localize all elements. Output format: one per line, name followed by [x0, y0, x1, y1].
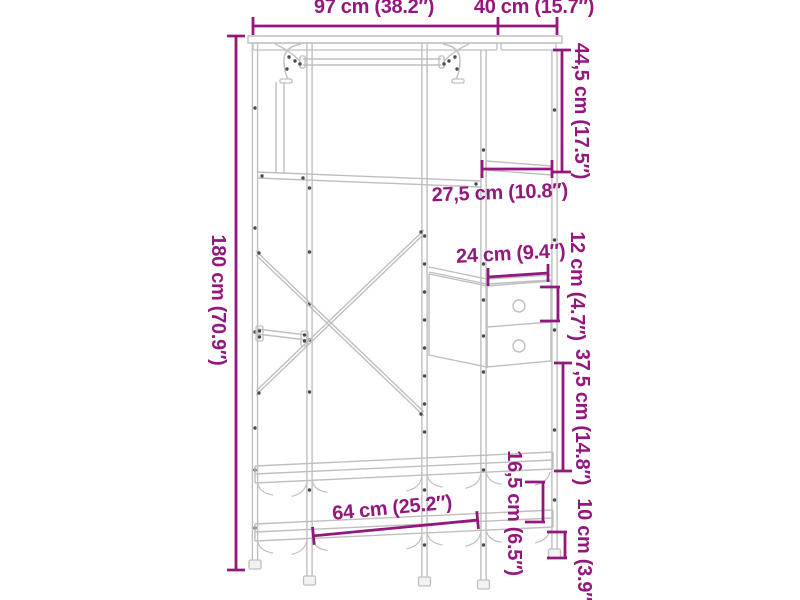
dim-top-section-height: 44,5 cm (17.5″): [553, 43, 592, 179]
diagram-canvas: 97 cm (38.2″) 40 cm (15.7″) 180 cm (70.9…: [0, 0, 800, 600]
x-brace: [256, 230, 424, 416]
total-depth-label: 40 cm (15.7″): [474, 0, 594, 18]
mid-section-height-label: 37,5 cm (14.8″): [571, 349, 593, 485]
dim-total-depth: 40 cm (15.7″): [474, 0, 594, 18]
top-board: [248, 36, 562, 50]
left-support: [276, 82, 284, 173]
side-shelf-depth-label: 27,5 cm (10.8″): [431, 180, 568, 207]
dim-shelf-length: 64 cm (25.2″): [310, 489, 478, 545]
total-width-label: 97 cm (38.2″): [314, 0, 434, 18]
total-height-label: 180 cm (70.9″): [207, 234, 229, 365]
shelf-length-label: 64 cm (25.2″): [331, 491, 453, 524]
top-section-height-label: 44,5 cm (17.5″): [570, 43, 592, 179]
shelf-gap-height-label: 16,5 cm (6.5″): [503, 450, 525, 575]
ground-clearance-label: 10 cm (3.9″): [573, 498, 595, 600]
dim-drawer-width: 24 cm (9.4″): [455, 240, 565, 286]
dim-mid-section-height: 37,5 cm (14.8″): [554, 349, 593, 485]
drawer-unit: [429, 267, 551, 367]
left-connector: [256, 326, 308, 346]
dimension-diagram: 97 cm (38.2″) 40 cm (15.7″) 180 cm (70.9…: [0, 0, 800, 600]
dim-side-shelf-depth: 27,5 cm (10.8″): [431, 160, 568, 206]
dim-total-height: 180 cm (70.9″): [207, 36, 245, 570]
drawer-height-label: 12 cm (4.7″): [566, 231, 588, 340]
drawer-width-label: 24 cm (9.4″): [455, 240, 565, 268]
